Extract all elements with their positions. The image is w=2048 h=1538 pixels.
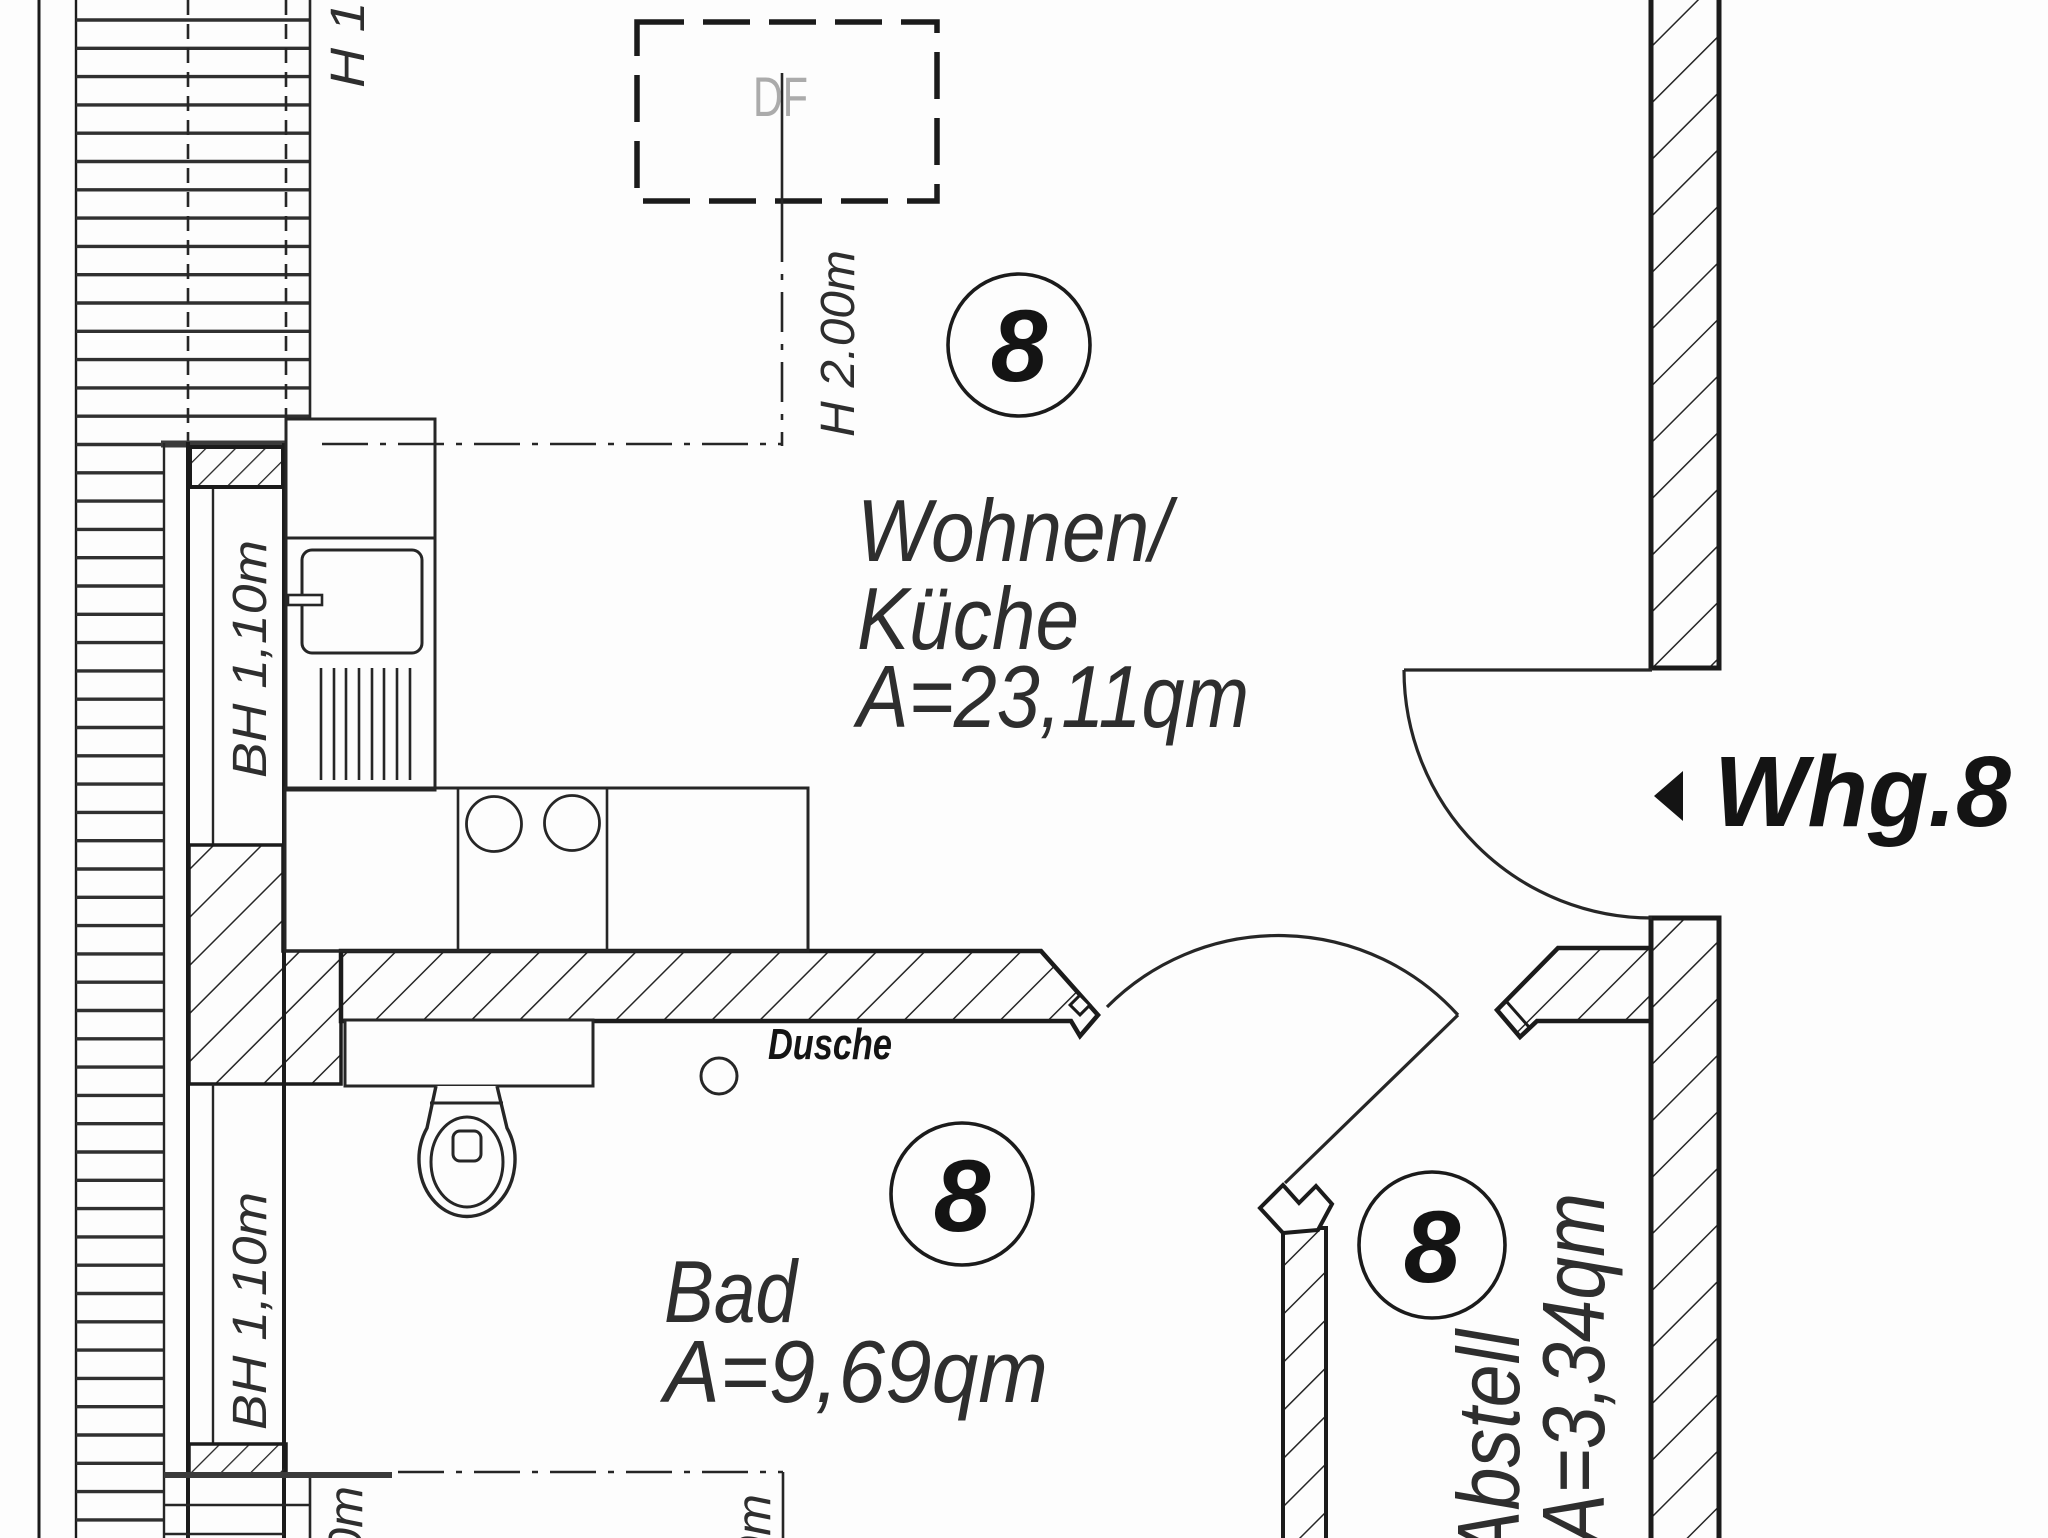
svg-text:BH 1,10m: BH 1,10m (224, 540, 277, 778)
svg-text:8: 8 (934, 1139, 991, 1253)
svg-text:DF: DF (753, 65, 808, 128)
svg-text:8: 8 (991, 289, 1048, 403)
svg-text:Dusche: Dusche (768, 1020, 892, 1069)
svg-text:Wohnen/: Wohnen/ (857, 481, 1179, 580)
svg-text:A=9,69qm: A=9,69qm (659, 1322, 1048, 1421)
svg-text:H 2,00m: H 2,00m (320, 1486, 373, 1538)
svg-text:A=3,34qm: A=3,34qm (1524, 1193, 1623, 1538)
svg-text:Whg.8: Whg.8 (1714, 736, 2011, 848)
svg-text:H 2,00m: H 2,00m (728, 1494, 781, 1538)
svg-text:H 1.50m: H 1.50m (322, 0, 375, 88)
svg-text:8: 8 (1404, 1190, 1461, 1304)
svg-text:H 2.00m: H 2.00m (812, 250, 865, 437)
svg-text:A=23,11qm: A=23,11qm (853, 647, 1249, 746)
svg-text:BH 1,10m: BH 1,10m (224, 1192, 277, 1430)
